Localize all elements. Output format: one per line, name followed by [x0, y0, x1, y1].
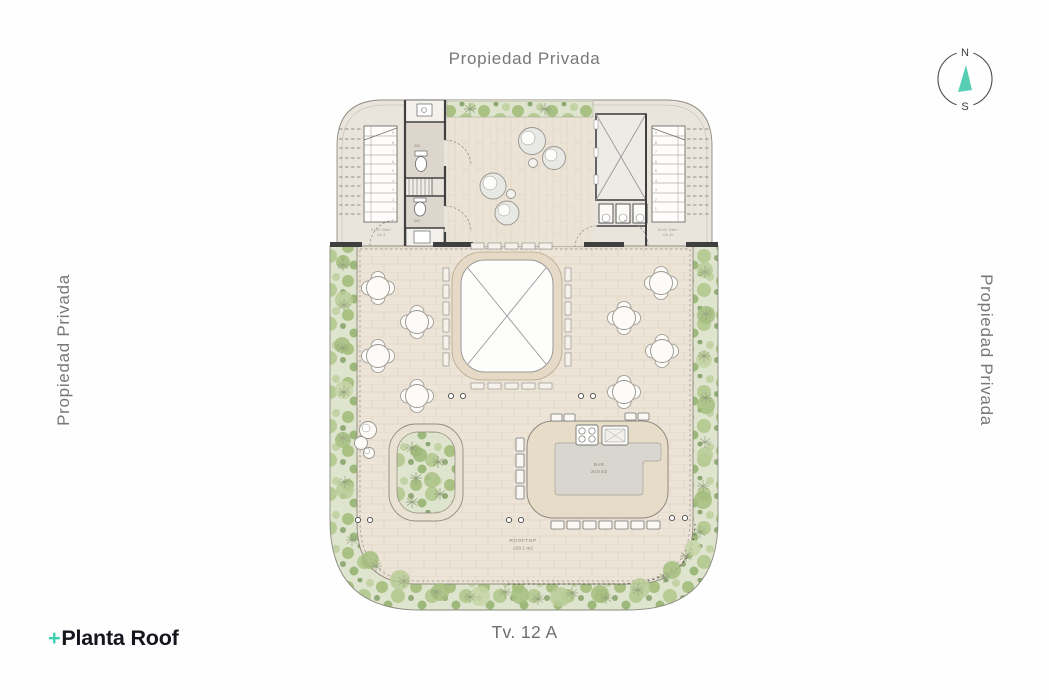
svg-text:2: 2 — [655, 198, 657, 202]
svg-text:4: 4 — [655, 179, 657, 183]
stair-right-note2: CA .11 — [663, 233, 673, 237]
floor-plan-sheet: Propiedad Privada Propiedad Privada Prop… — [0, 0, 1049, 700]
svg-text:8: 8 — [392, 141, 394, 145]
stair-left-note1: S.U.E. 3.9m+ — [371, 228, 391, 232]
stair-right-note1: S.U.E. 3.9m+ — [658, 228, 678, 232]
bar-area: BAR 20.9 m2 — [516, 413, 668, 529]
svg-text:4: 4 — [392, 179, 394, 183]
toilet-upper — [416, 157, 427, 172]
toilet-tank-lower — [414, 198, 426, 202]
sink-upper — [417, 104, 432, 116]
stair-left-note2: CA .2 — [377, 233, 385, 237]
washbasin-row — [599, 204, 647, 223]
stair-left-numbers: 9 8 7 6 5 4 3 2 1 — [392, 131, 394, 211]
bar-label: BAR — [594, 462, 605, 467]
svg-text:3: 3 — [392, 188, 394, 192]
rooftop-area-label: 228.1 m2 — [513, 546, 533, 552]
svg-text:6: 6 — [655, 160, 657, 164]
rooftop-label: ROOFTOP — [509, 538, 536, 544]
stair-right-numbers: 9 8 7 6 5 4 3 2 1 — [655, 131, 657, 211]
stove — [576, 425, 598, 445]
wc-lower-label: WC — [414, 218, 421, 223]
toilet-lower — [415, 202, 426, 216]
toilet-tank-upper — [415, 151, 427, 156]
svg-text:3: 3 — [655, 188, 657, 192]
svg-text:1: 1 — [655, 207, 657, 211]
floor-plan-drawing: 9 8 7 6 5 4 3 2 1 S.U.E. 3.9m+ CA .2 WC — [0, 0, 1049, 700]
svg-text:8: 8 — [655, 141, 657, 145]
svg-text:7: 7 — [655, 150, 657, 154]
wc-upper-label: WC — [414, 143, 421, 148]
svg-text:1: 1 — [392, 207, 394, 211]
svg-text:2: 2 — [392, 198, 394, 202]
svg-text:6: 6 — [392, 160, 394, 164]
skylight — [443, 243, 571, 389]
svg-text:9: 9 — [655, 131, 657, 135]
svg-text:5: 5 — [655, 169, 657, 173]
sink-lower — [414, 231, 430, 243]
planter-box — [389, 424, 463, 521]
bar-area-label: 20.9 m2 — [591, 469, 608, 474]
svg-text:5: 5 — [392, 169, 394, 173]
upper-terrace-deck — [447, 100, 593, 246]
svg-text:9: 9 — [392, 131, 394, 135]
svg-text:7: 7 — [392, 150, 394, 154]
